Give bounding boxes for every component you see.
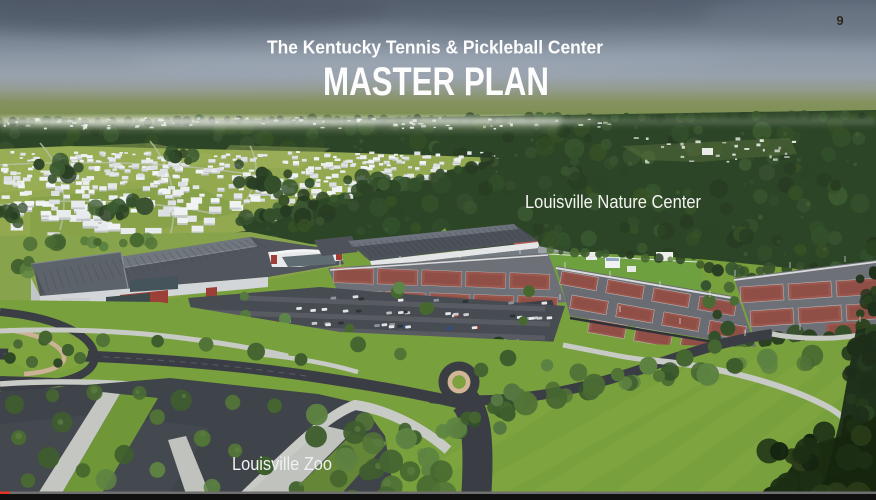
svg-text:Louisville Zoo: Louisville Zoo	[232, 454, 332, 474]
svg-text:9: 9	[836, 13, 843, 28]
svg-text:MASTER PLAN: MASTER PLAN	[323, 60, 549, 104]
svg-text:The Kentucky Tennis & Pickleba: The Kentucky Tennis & Pickleball Center	[267, 37, 603, 58]
svg-text:Louisville Nature Center: Louisville Nature Center	[525, 192, 701, 212]
